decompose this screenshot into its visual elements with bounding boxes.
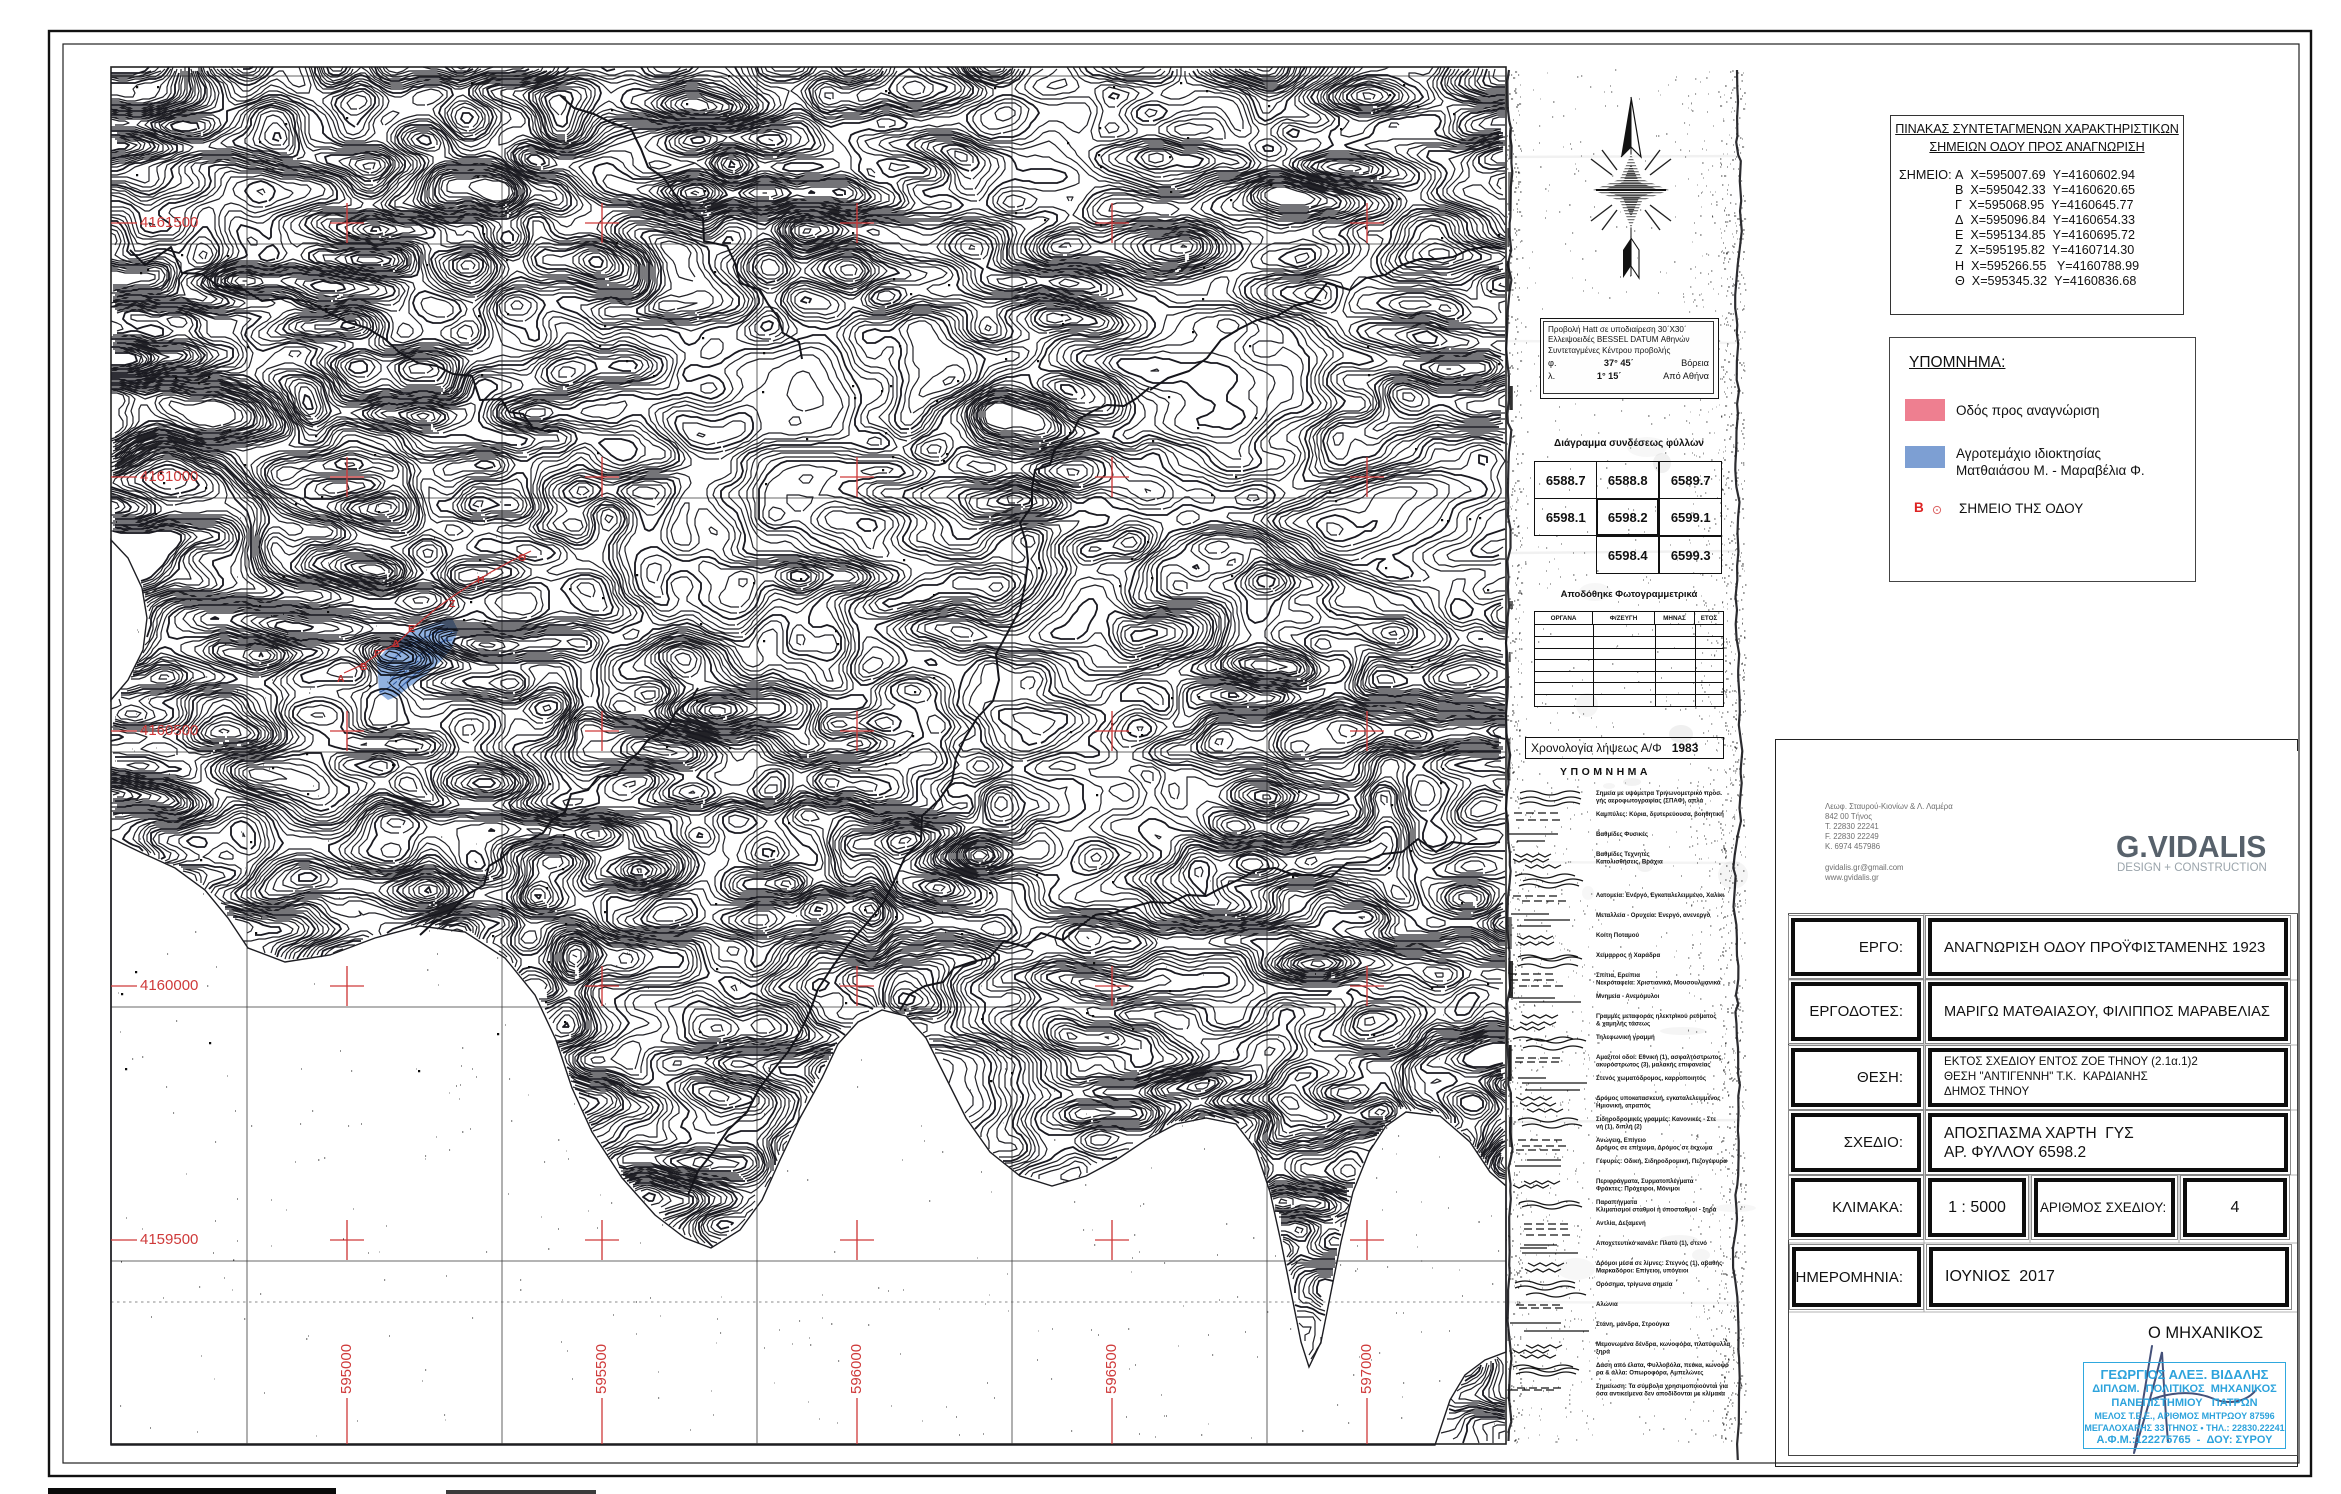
svg-text:Αντλία, Δεξαμενή: Αντλία, Δεξαμενή: [1596, 1220, 1646, 1227]
svg-text:Αμαξιτοί οδοί: Εθνική (1), ασφ: Αμαξιτοί οδοί: Εθνική (1), ασφαλτόστρωτο…: [1596, 1054, 1722, 1061]
svg-text:Νεκροταφεία: Χριστιανικά, Μουσ: Νεκροταφεία: Χριστιανικά, Μουσουλμανικά: [1596, 980, 1721, 987]
svg-text:ρα & άλλα: Οπωροφόρα, Αμπελώνε: ρα & άλλα: Οπωροφόρα, Αμπελώνες: [1596, 1370, 1703, 1377]
svg-text:Αλώνια: Αλώνια: [1596, 1301, 1618, 1308]
svg-text:Σπίτια, Ερείπια: Σπίτια, Ερείπια: [1596, 972, 1640, 979]
svg-text:Κοίτη Ποταμού: Κοίτη Ποταμού: [1596, 932, 1640, 939]
svg-text:Στάνη, μάνδρα, Στρούγκα: Στάνη, μάνδρα, Στρούγκα: [1596, 1321, 1670, 1328]
svg-text:ξηρά: ξηρά: [1596, 1349, 1610, 1356]
svg-text:Μαρκαδόροι: Επίγειοι, υπόγειοι: Μαρκαδόροι: Επίγειοι, υπόγειοι: [1596, 1268, 1689, 1275]
svg-text:Βαθμίδες Φυσικές: Βαθμίδες Φυσικές: [1596, 831, 1648, 838]
svg-text:Β: Β: [360, 661, 368, 673]
svg-text:Δρόμος υποκατασκευή, εγκαταλελ: Δρόμος υποκατασκευή, εγκαταλελειμμένος: [1596, 1095, 1721, 1102]
svg-text:Χείμαρρος ή Χαράδρα: Χείμαρρος ή Χαράδρα: [1596, 952, 1660, 959]
svg-text:Δ: Δ: [392, 638, 400, 650]
svg-text:Σιδηροδρομικές γραμμές: Κανονι: Σιδηροδρομικές γραμμές: Κανονικές - Στε: [1596, 1116, 1716, 1123]
svg-text:Δάση από έλατα, Φυλλοβόλα, πεύ: Δάση από έλατα, Φυλλοβόλα, πεύκα, κωνοφό: [1596, 1362, 1729, 1369]
svg-text:4161500: 4161500: [140, 214, 198, 231]
svg-text:Περιφράγματα, Συρματοπλέγματα: Περιφράγματα, Συρματοπλέγματα: [1596, 1178, 1694, 1185]
svg-text:Μεταλλεία - Ορυχεία: Ενεργό, α: Μεταλλεία - Ορυχεία: Ενεργό, ανενεργό: [1596, 912, 1710, 919]
svg-text:Φράκτες: Πρόχειροι, Μόνιμοι: Φράκτες: Πρόχειροι, Μόνιμοι: [1596, 1186, 1680, 1193]
svg-text:595500: 595500: [593, 1344, 610, 1394]
svg-text:Η: Η: [477, 574, 485, 586]
svg-text:Ορόσημα, τρίγωνα σημεία: Ορόσημα, τρίγωνα σημεία: [1596, 1281, 1673, 1288]
svg-text:Γ: Γ: [374, 648, 381, 660]
svg-text:Γραμμές μεταφοράς ηλεκτρικού ρ: Γραμμές μεταφοράς ηλεκτρικού ρεύματος: [1596, 1013, 1717, 1020]
svg-text:Ε: Ε: [408, 623, 415, 635]
svg-text:Αποχετευτικό κανάλι: Πλατύ (1): Αποχετευτικό κανάλι: Πλατύ (1), στενό: [1596, 1240, 1707, 1247]
svg-text:Τηλεφωνική γραμμή: Τηλεφωνική γραμμή: [1596, 1034, 1655, 1041]
svg-text:Ζ: Ζ: [449, 598, 456, 610]
svg-text:4161000: 4161000: [140, 468, 198, 485]
svg-text:4160000: 4160000: [140, 977, 198, 994]
svg-text:Κατολισθήσεις, Βράχια: Κατολισθήσεις, Βράχια: [1596, 859, 1663, 866]
svg-text:596500: 596500: [1103, 1344, 1120, 1394]
svg-text:Λατομεία: Ενεργό, Εγκαταλελειμ: Λατομεία: Ενεργό, Εγκαταλελειμμένο, Χαλί…: [1596, 892, 1724, 899]
svg-text:Μνημεία - Ανεμόμυλοι: Μνημεία - Ανεμόμυλοι: [1596, 993, 1660, 1000]
svg-text:Θ: Θ: [518, 552, 526, 564]
svg-text:Ανώγειο, Επίγειο: Ανώγειο, Επίγειο: [1596, 1137, 1646, 1144]
svg-text:Καμπύλες: Κύρια, δευτερεύουσα,: Καμπύλες: Κύρια, δευτερεύουσα, βοηθητική: [1596, 811, 1724, 818]
svg-text:όσα αντικείμενα δεν αποδίδοντα: όσα αντικείμενα δεν αποδίδονται με κλίμα…: [1596, 1391, 1725, 1398]
svg-text:ακυρόστρωτος (3), μαλακής επιφ: ακυρόστρωτος (3), μαλακής επιφανείας: [1596, 1062, 1711, 1069]
svg-text:Α: Α: [337, 673, 345, 685]
svg-text:Δρόμοι μέσα σε λίμνες: Στεγνός: Δρόμοι μέσα σε λίμνες: Στεγνός (1), αβαθ…: [1596, 1260, 1722, 1267]
svg-text:Στενός χωματόδρομος, καρροποιη: Στενός χωματόδρομος, καρροποιητός: [1596, 1075, 1706, 1082]
svg-text:Ημιονική, ατραπός: Ημιονική, ατραπός: [1596, 1103, 1651, 1110]
svg-text:4159500: 4159500: [140, 1231, 198, 1248]
svg-text:νή (1), διπλή (2): νή (1), διπλή (2): [1596, 1124, 1642, 1131]
svg-text:Παραπήγματα: Παραπήγματα: [1596, 1199, 1637, 1206]
svg-text:Κλιματισμοί σταθμοί ή υποσταθμ: Κλιματισμοί σταθμοί ή υποσταθμοί - ξηρά: [1596, 1207, 1717, 1214]
svg-text:596000: 596000: [848, 1344, 865, 1394]
svg-text:4160500: 4160500: [140, 722, 198, 739]
svg-text:Δρόμος σε επίχωμα, Δρόμος σε έ: Δρόμος σε επίχωμα, Δρόμος σε έκχωμα: [1596, 1145, 1713, 1152]
svg-text:Σημείωση: Τα σύμβολα χρησιμοπο: Σημείωση: Τα σύμβολα χρησιμοποιούνται γι…: [1596, 1383, 1728, 1390]
svg-text:Γέφυρες: Οδική, Σιδηροδρομική,: Γέφυρες: Οδική, Σιδηροδρομική, Πεζογέφυρ…: [1596, 1158, 1727, 1165]
svg-text:595000: 595000: [338, 1344, 355, 1394]
svg-text:Μεμονωμένα δένδρα, κωνοφόρα, π: Μεμονωμένα δένδρα, κωνοφόρα, πλατύφυλλα: [1596, 1341, 1731, 1348]
svg-text:Βαθμίδες Τεχνητές: Βαθμίδες Τεχνητές: [1596, 851, 1650, 858]
svg-text:& χαμηλής τάσεως: & χαμηλής τάσεως: [1596, 1021, 1650, 1028]
svg-text:597000: 597000: [1358, 1344, 1375, 1394]
svg-text:γής αεροφωτογραφίας (ΣΠΑΦ), απ: γής αεροφωτογραφίας (ΣΠΑΦ), απλά: [1596, 798, 1704, 805]
svg-text:Σημεία με υψόμετρα Τριγωνομετρ: Σημεία με υψόμετρα Τριγωνομετρικό προσ.: [1596, 790, 1722, 797]
